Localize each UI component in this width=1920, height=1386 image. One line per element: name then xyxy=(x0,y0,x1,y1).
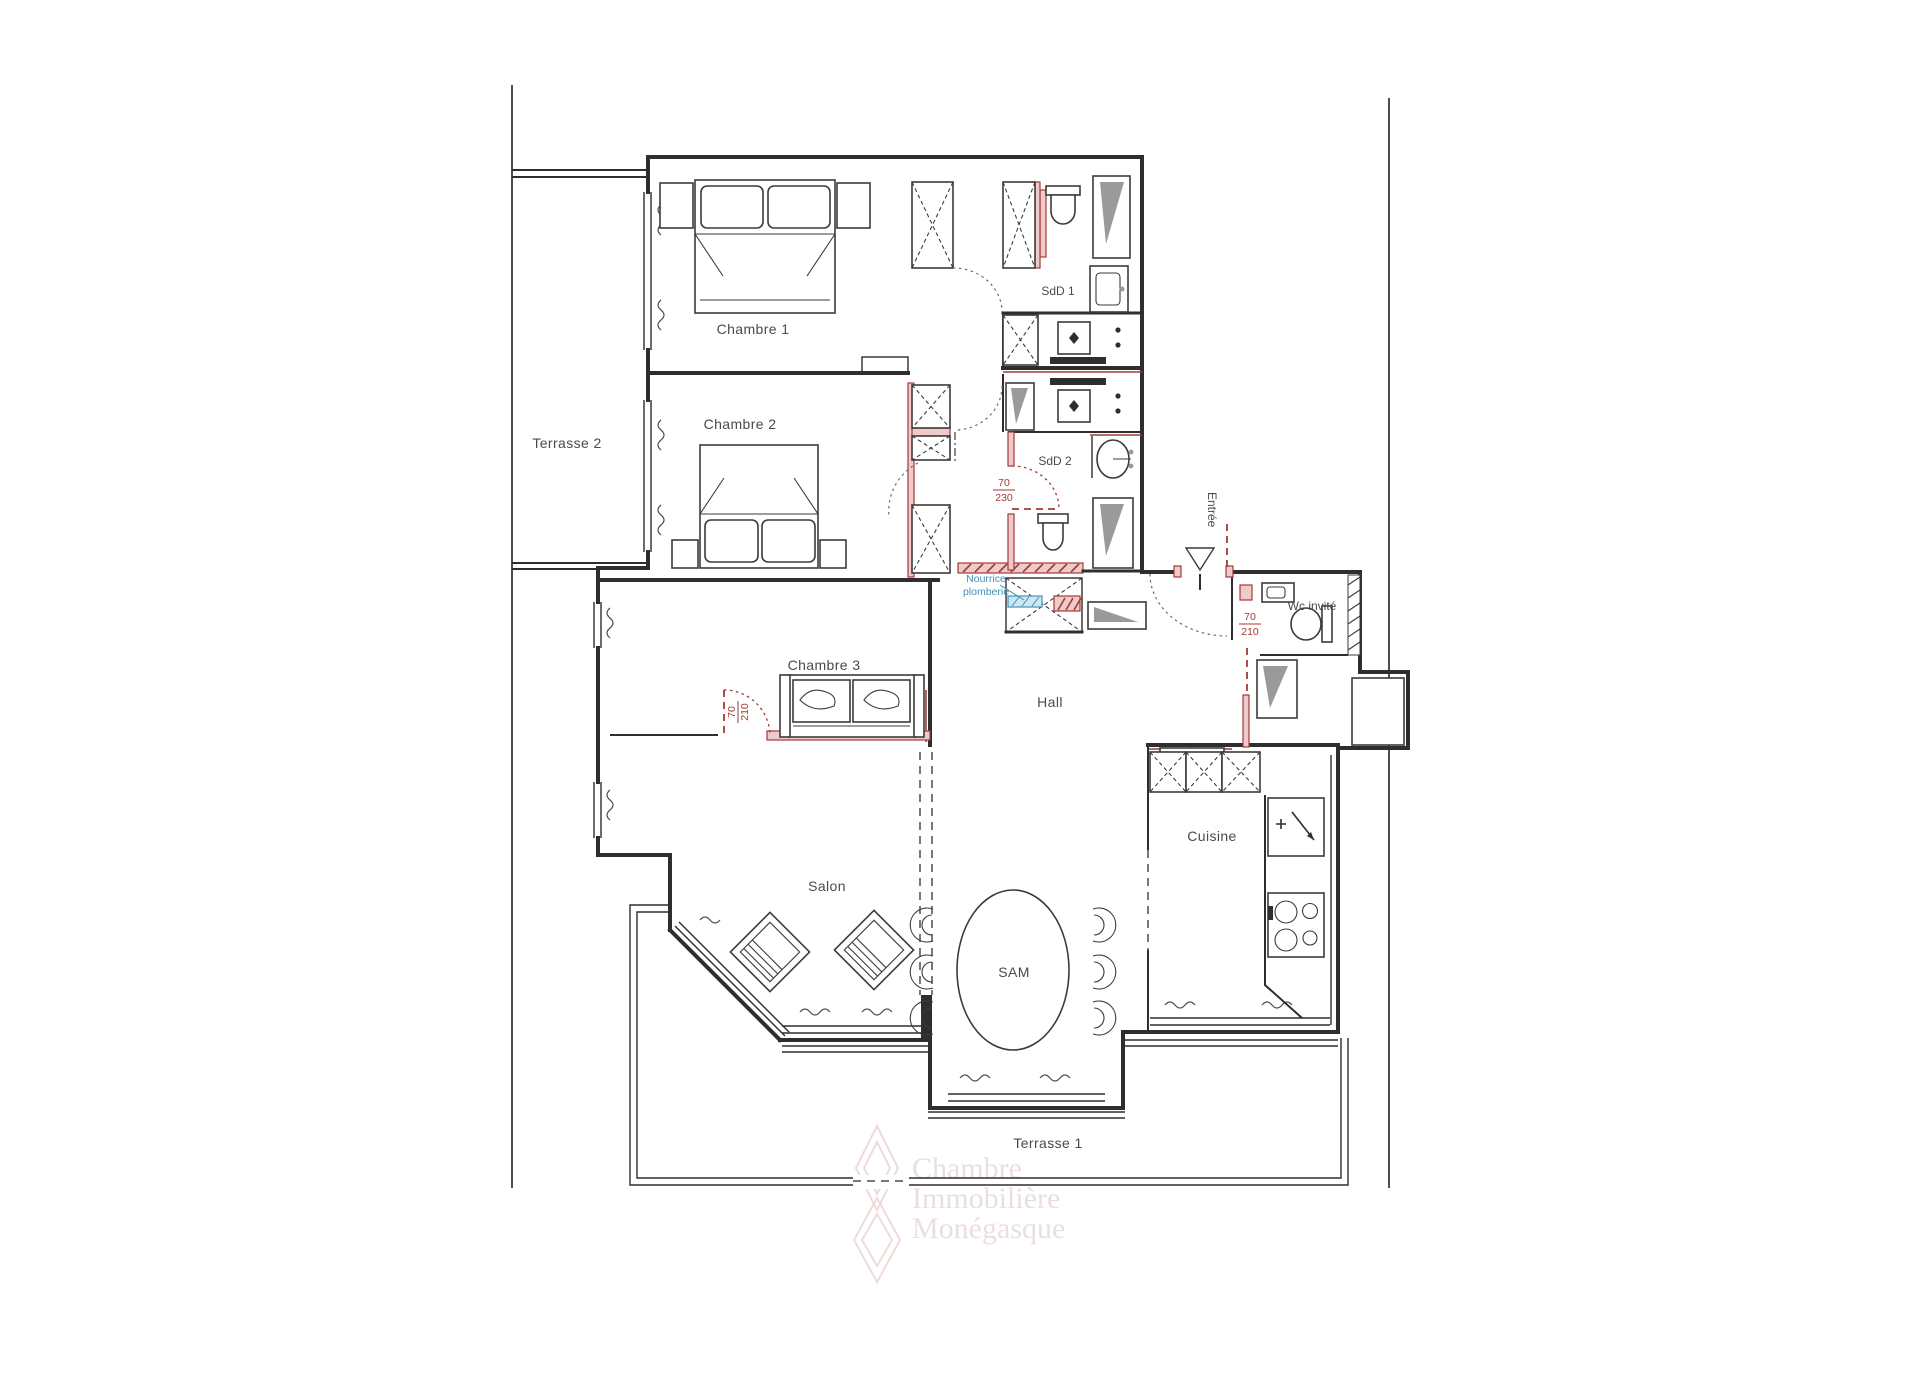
hall-bench xyxy=(1088,602,1146,629)
nightstand-right xyxy=(820,540,846,568)
label-wc-invite: Wc invité xyxy=(1288,599,1337,613)
label-chambre3: Chambre 3 xyxy=(788,657,861,673)
label-sdd2: SdD 2 xyxy=(1038,454,1072,468)
laundry-lower xyxy=(1006,378,1121,430)
electrical-box xyxy=(1054,596,1081,611)
note-nourrice-line2: plomberie xyxy=(963,586,1009,598)
armchair-salon-left xyxy=(730,912,809,991)
sdd2-shower xyxy=(1093,498,1133,568)
sdd2-toilet xyxy=(1038,514,1068,550)
kitchen-sink xyxy=(1268,798,1324,856)
watermark-text: Chambre Immobilière Monégasque xyxy=(912,1152,1065,1245)
label-hall: Hall xyxy=(1037,694,1063,710)
entry-arrow-icon xyxy=(1186,548,1214,570)
kitchen-cooktop xyxy=(1268,893,1324,957)
bed-chambre1 xyxy=(660,180,870,313)
armchair-salon-right xyxy=(834,910,913,989)
dim-ch3-den: 210 xyxy=(739,703,751,721)
label-chambre1: Chambre 1 xyxy=(717,321,790,337)
bed-chambre2 xyxy=(672,445,846,568)
watermark-line3: Monégasque xyxy=(912,1212,1065,1245)
laundry-upper xyxy=(1003,315,1121,365)
label-entree: Entrée xyxy=(1205,492,1219,528)
label-terrasse2: Terrasse 2 xyxy=(532,435,601,451)
floor-plan-drawing: Chambre Immobilière Monégasque xyxy=(0,0,1920,1386)
dim-ch3: 70 210 xyxy=(726,701,751,723)
wardrobes-chambre1 xyxy=(912,182,1035,268)
nightstand-left xyxy=(672,540,698,568)
plumbing-manifold xyxy=(1008,596,1042,607)
note-nourrice-line1: Nourrice xyxy=(966,573,1006,585)
watermark-line2: Immobilière xyxy=(912,1182,1060,1215)
watermark-logo xyxy=(854,1126,900,1282)
label-terrasse1: Terrasse 1 xyxy=(1013,1135,1082,1151)
nightstand-right xyxy=(837,183,870,228)
watermark-line1: Chambre xyxy=(912,1152,1022,1185)
sdd2-washbasin xyxy=(1097,440,1133,478)
floor-plan-page: Chambre Immobilière Monégasque xyxy=(0,0,1920,1386)
curtain-marks xyxy=(607,205,1292,1081)
dim-sdd2-num: 70 xyxy=(998,477,1010,489)
label-cuisine: Cuisine xyxy=(1187,828,1237,844)
dim-sdd2-den: 230 xyxy=(995,492,1013,504)
label-chambre2: Chambre 2 xyxy=(704,416,777,432)
sdd1-toilet xyxy=(1046,186,1080,224)
dim-wc: 70 210 xyxy=(1239,611,1261,638)
entrance xyxy=(1150,524,1227,636)
dim-wc-num: 70 xyxy=(1244,611,1256,623)
label-salon: Salon xyxy=(808,878,846,894)
nightstand-left xyxy=(660,183,693,228)
label-sdd1: SdD 1 xyxy=(1041,284,1075,298)
label-sam: SAM xyxy=(998,964,1030,980)
dim-wc-den: 210 xyxy=(1241,626,1259,638)
dim-ch3-num: 70 xyxy=(726,706,738,718)
wardrobes-chambre2 xyxy=(912,385,950,573)
dim-sdd2: 70 230 xyxy=(993,477,1015,504)
sdd1-washbasin xyxy=(1090,266,1128,312)
sdd1-shower xyxy=(1093,176,1130,258)
kitchen-fittings xyxy=(1150,748,1324,1018)
sofa-chambre3 xyxy=(780,675,924,737)
